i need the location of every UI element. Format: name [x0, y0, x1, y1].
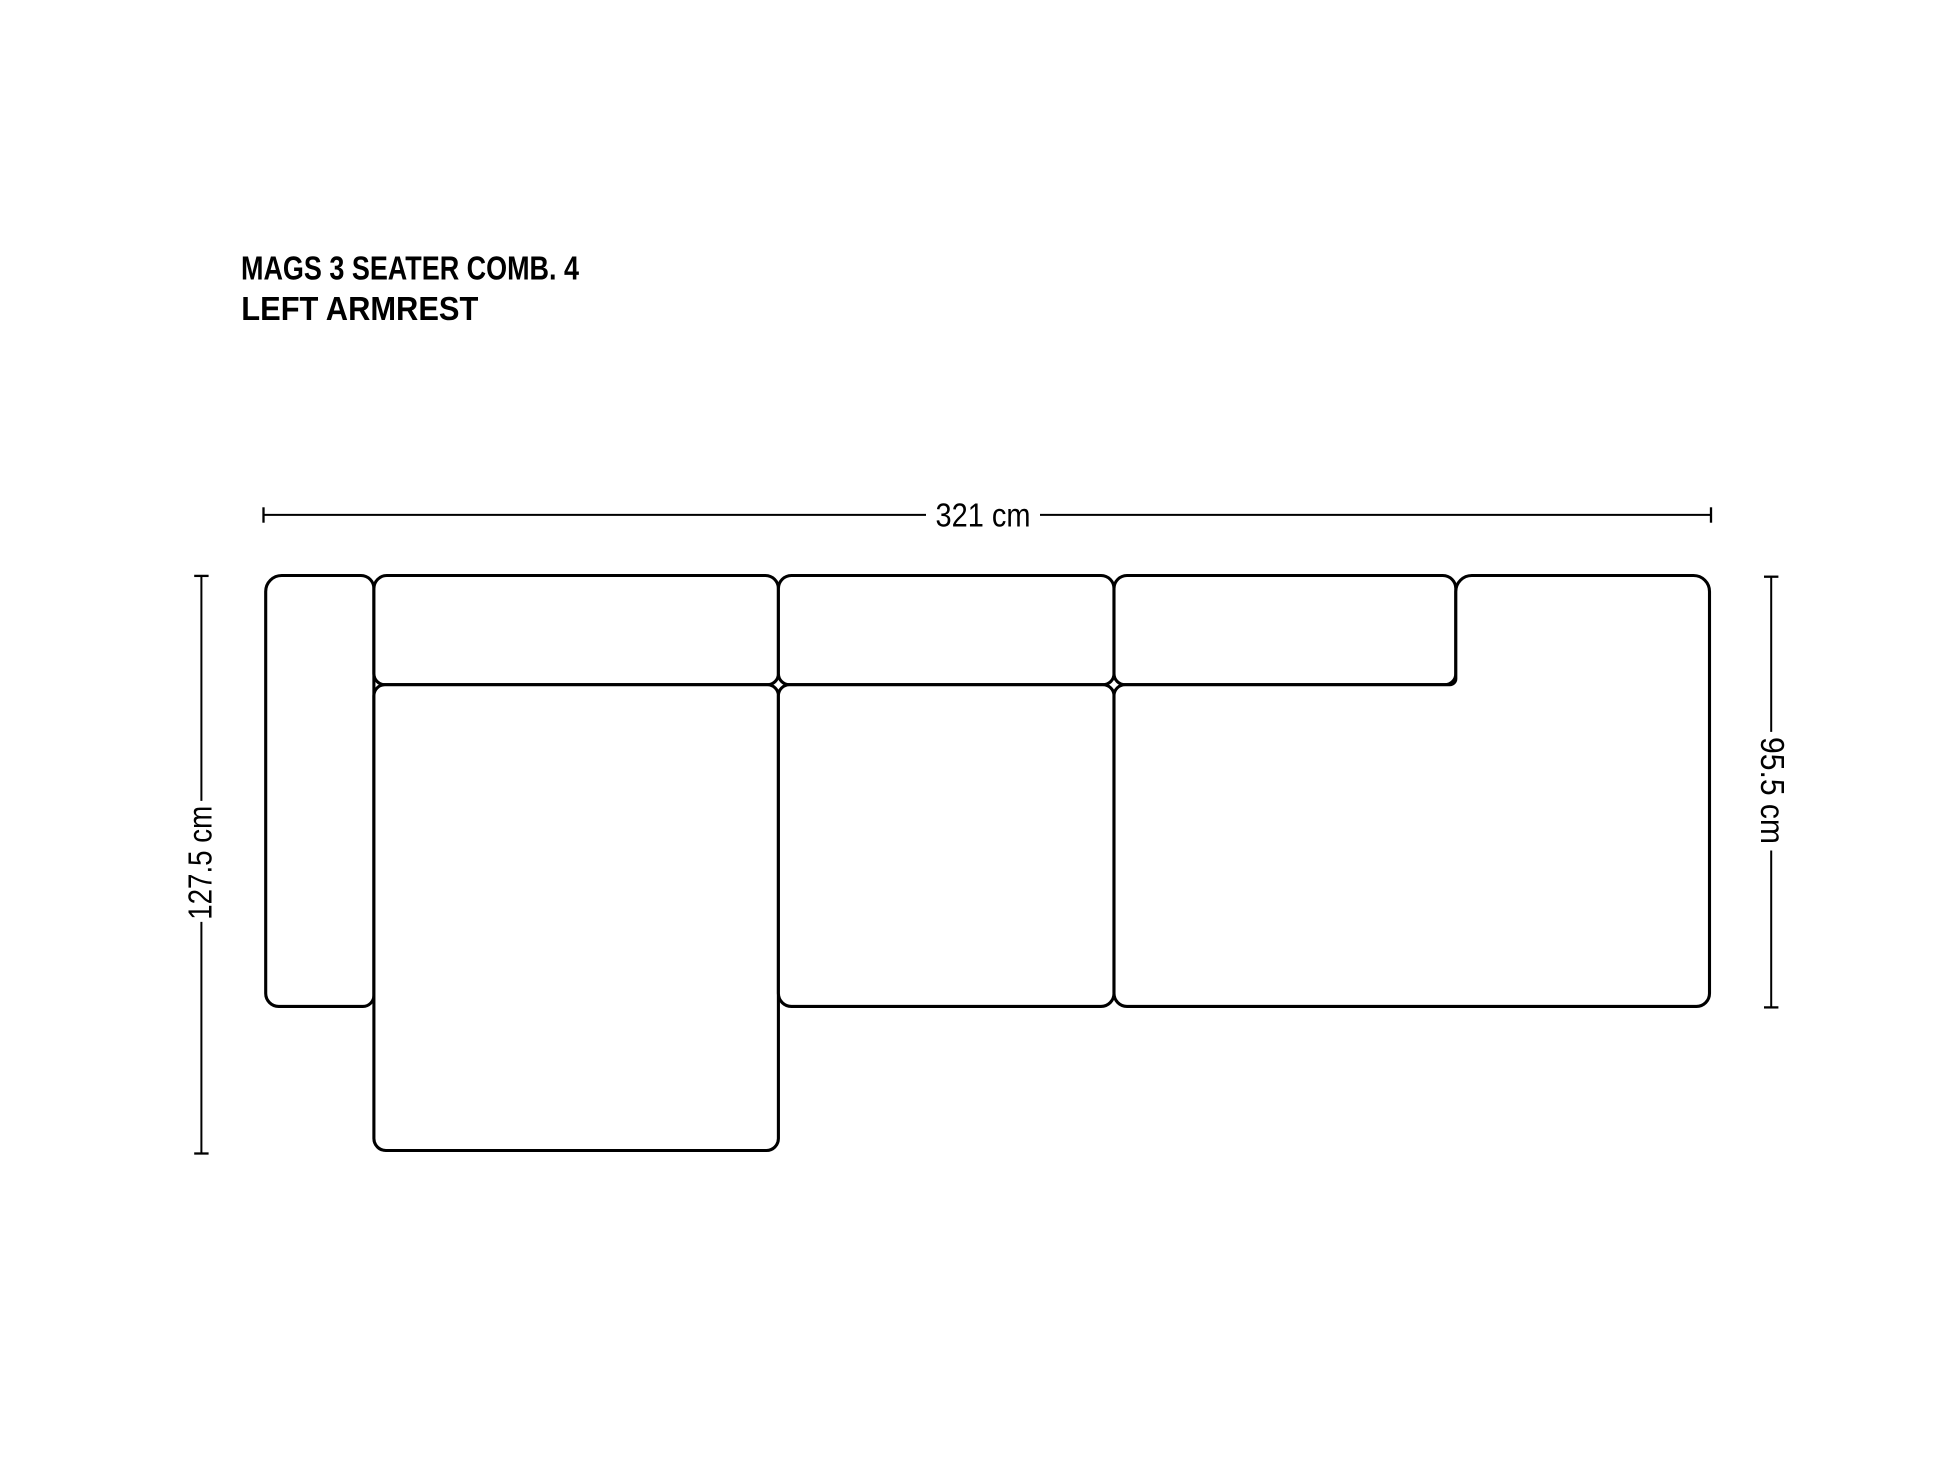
- svg-text:LEFT ARMREST: LEFT ARMREST: [241, 291, 478, 328]
- svg-text:95.5 cm: 95.5 cm: [1753, 737, 1790, 844]
- svg-text:127.5 cm: 127.5 cm: [183, 806, 220, 920]
- svg-text:MAGS 3 SEATER COMB. 4: MAGS 3 SEATER COMB. 4: [241, 250, 579, 287]
- svg-text:321 cm: 321 cm: [936, 497, 1031, 534]
